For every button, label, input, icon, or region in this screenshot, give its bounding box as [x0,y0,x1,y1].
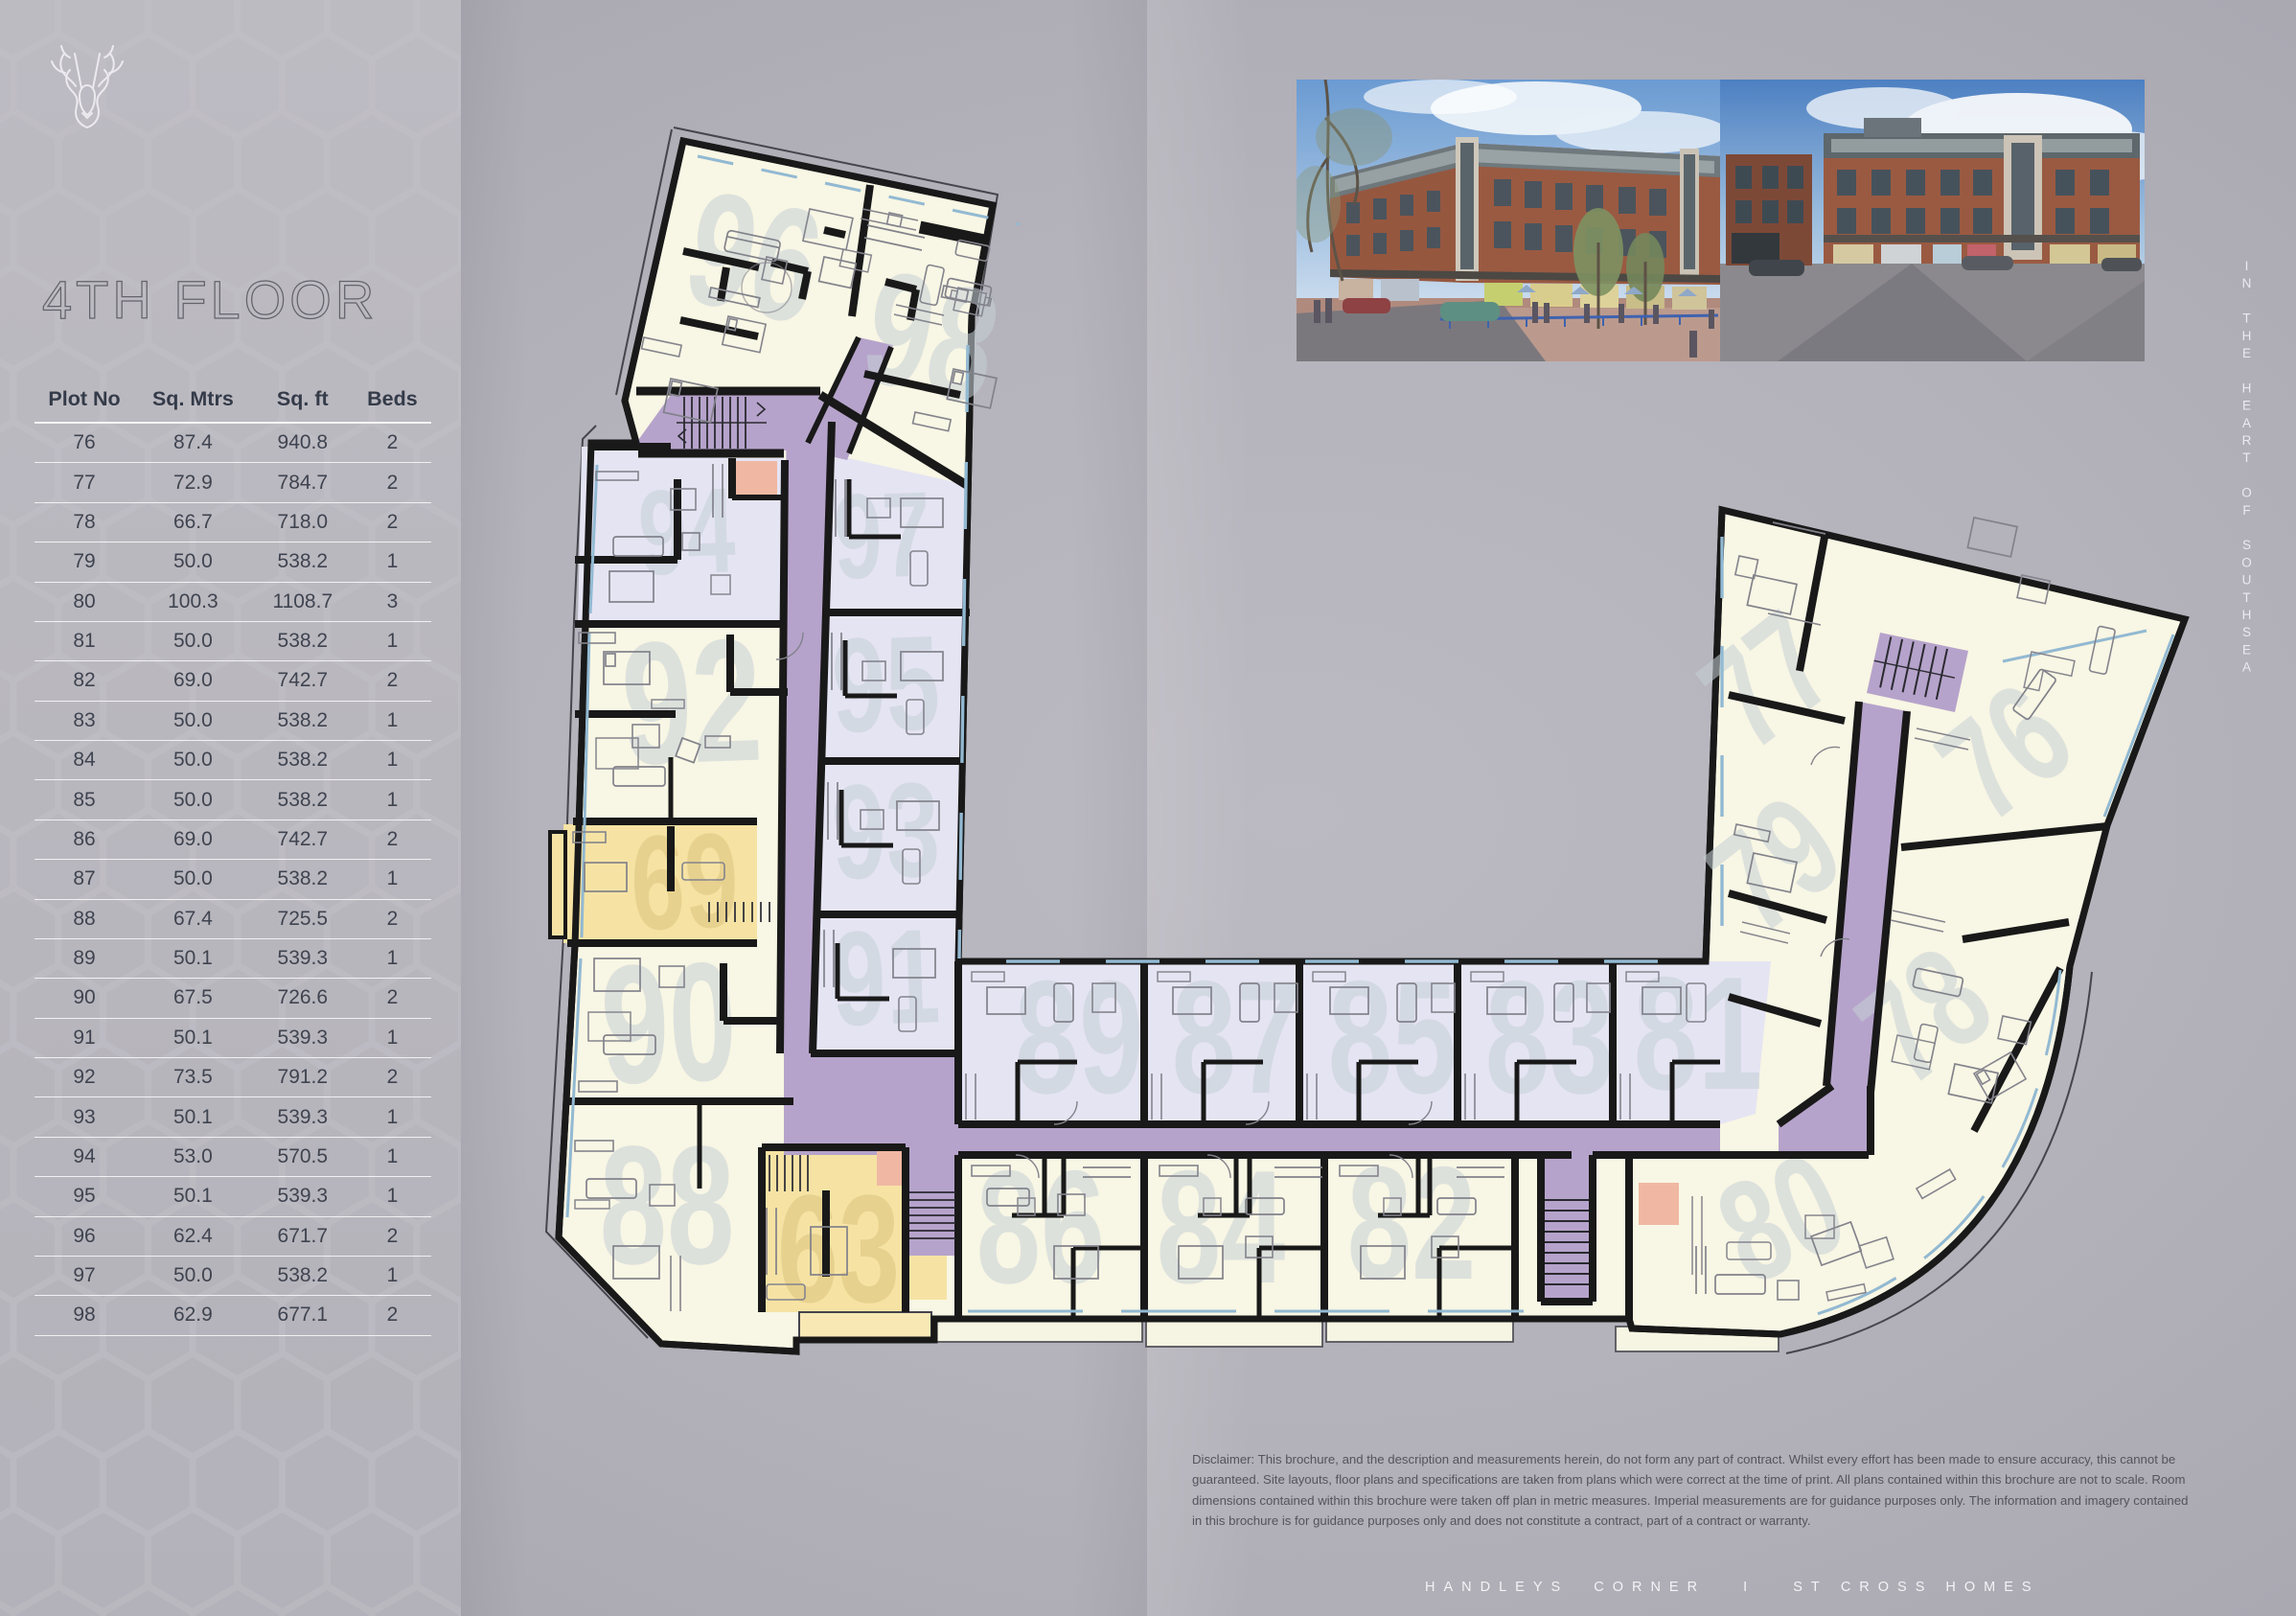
svg-text:81: 81 [1634,944,1763,1124]
svg-text:86: 86 [976,1138,1106,1318]
svg-text:83: 83 [1485,948,1615,1128]
svg-text:63: 63 [777,1163,900,1334]
svg-text:87: 87 [1172,948,1301,1128]
svg-text:85: 85 [1328,948,1458,1128]
svg-text:89: 89 [1015,948,1144,1128]
svg-text:69: 69 [629,805,741,958]
svg-text:92: 92 [618,601,765,801]
svg-text:82: 82 [1347,1134,1477,1314]
svg-text:84: 84 [1157,1138,1286,1318]
